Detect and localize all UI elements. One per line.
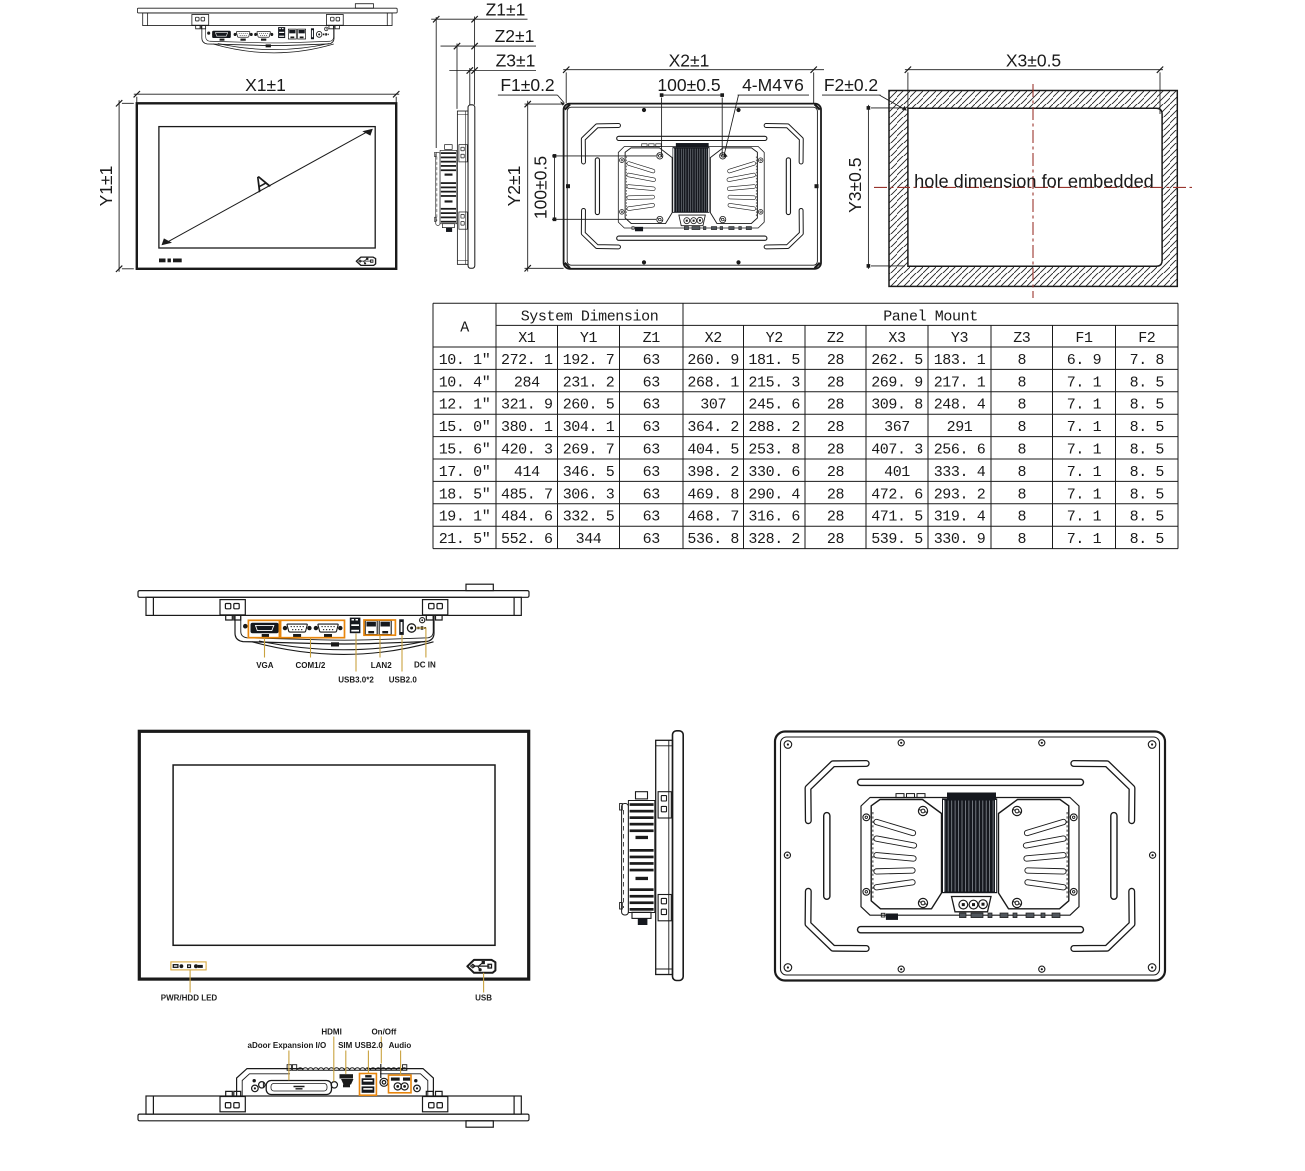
svg-text:8. 5: 8. 5	[1130, 486, 1165, 503]
svg-text:304. 1: 304. 1	[563, 419, 615, 436]
svg-text:PWR/HDD LED: PWR/HDD LED	[161, 994, 218, 1003]
svg-text:8: 8	[1017, 486, 1026, 503]
svg-text:4-M4: 4-M4	[742, 75, 782, 95]
svg-text:346. 5: 346. 5	[563, 464, 615, 481]
svg-text:6: 6	[794, 75, 804, 95]
svg-text:63: 63	[643, 374, 661, 391]
svg-text:328. 2: 328. 2	[748, 531, 800, 548]
svg-text:8. 5: 8. 5	[1130, 419, 1165, 436]
svg-text:7. 1: 7. 1	[1067, 464, 1102, 481]
svg-text:8: 8	[1017, 352, 1026, 369]
svg-text:215. 3: 215. 3	[748, 374, 800, 391]
svg-text:A: A	[250, 170, 273, 197]
svg-text:28: 28	[827, 509, 845, 526]
svg-text:291: 291	[947, 419, 973, 436]
svg-text:7. 1: 7. 1	[1067, 397, 1102, 414]
svg-text:7. 1: 7. 1	[1067, 419, 1102, 436]
svg-text:18. 5": 18. 5"	[439, 486, 491, 503]
svg-text:183. 1: 183. 1	[934, 352, 986, 369]
svg-text:192. 7: 192. 7	[563, 352, 615, 369]
svg-text:HDMI: HDMI	[321, 1028, 341, 1037]
svg-text:15. 0": 15. 0"	[439, 419, 491, 436]
svg-text:USB2.0: USB2.0	[389, 676, 418, 685]
svg-text:552. 6: 552. 6	[501, 531, 553, 548]
svg-text:Z3±1: Z3±1	[496, 51, 536, 71]
svg-text:8. 5: 8. 5	[1130, 509, 1165, 526]
svg-text:X1±1: X1±1	[245, 75, 286, 95]
svg-text:12. 1": 12. 1"	[439, 397, 491, 414]
svg-text:7. 1: 7. 1	[1067, 531, 1102, 548]
svg-text:100±0.5: 100±0.5	[657, 75, 720, 95]
svg-text:A: A	[460, 320, 469, 337]
svg-text:268. 1: 268. 1	[687, 374, 739, 391]
svg-text:284: 284	[514, 374, 540, 391]
svg-text:63: 63	[643, 509, 661, 526]
svg-text:28: 28	[827, 531, 845, 548]
svg-text:290. 4: 290. 4	[748, 486, 800, 503]
svg-text:USB: USB	[475, 994, 492, 1003]
svg-text:485. 7: 485. 7	[501, 486, 553, 503]
svg-text:100±0.5: 100±0.5	[531, 156, 551, 219]
svg-text:401: 401	[884, 464, 910, 481]
svg-text:8: 8	[1017, 374, 1026, 391]
svg-text:F2: F2	[1138, 330, 1155, 347]
svg-text:28: 28	[827, 486, 845, 503]
svg-text:X3±0.5: X3±0.5	[1006, 50, 1061, 70]
svg-text:316. 6: 316. 6	[748, 509, 800, 526]
svg-text:Y1: Y1	[580, 330, 598, 347]
svg-text:System Dimension: System Dimension	[521, 309, 659, 326]
svg-text:28: 28	[827, 464, 845, 481]
svg-text:USB2.0: USB2.0	[355, 1041, 384, 1050]
svg-text:8: 8	[1017, 442, 1026, 459]
svg-text:Audio: Audio	[389, 1041, 412, 1050]
svg-text:28: 28	[827, 442, 845, 459]
svg-text:Panel Mount: Panel Mount	[883, 309, 978, 326]
svg-text:8. 5: 8. 5	[1130, 531, 1165, 548]
svg-text:VGA: VGA	[256, 661, 274, 670]
svg-text:8. 5: 8. 5	[1130, 464, 1165, 481]
svg-text:471. 5: 471. 5	[871, 509, 923, 526]
svg-text:8. 5: 8. 5	[1130, 442, 1165, 459]
svg-text:X1: X1	[518, 330, 536, 347]
svg-text:Y3: Y3	[951, 330, 969, 347]
svg-text:469. 8: 469. 8	[687, 486, 739, 503]
svg-text:7. 8: 7. 8	[1130, 352, 1165, 369]
svg-text:Z3: Z3	[1013, 330, 1031, 347]
svg-text:28: 28	[827, 374, 845, 391]
svg-text:6. 9: 6. 9	[1067, 352, 1101, 369]
svg-text:7. 1: 7. 1	[1067, 374, 1102, 391]
svg-text:21. 5": 21. 5"	[439, 531, 491, 548]
svg-text:X2: X2	[705, 330, 722, 347]
svg-text:10. 4": 10. 4"	[439, 374, 491, 391]
svg-text:USB3.0*2: USB3.0*2	[338, 676, 374, 685]
svg-text:217. 1: 217. 1	[934, 374, 986, 391]
svg-text:272. 1: 272. 1	[501, 352, 553, 369]
svg-text:253. 8: 253. 8	[748, 442, 800, 459]
svg-text:330. 6: 330. 6	[748, 464, 800, 481]
svg-text:63: 63	[643, 531, 661, 548]
svg-text:245. 6: 245. 6	[748, 397, 800, 414]
svg-text:8. 5: 8. 5	[1130, 397, 1165, 414]
svg-text:484. 6: 484. 6	[501, 509, 553, 526]
svg-text:28: 28	[827, 419, 845, 436]
svg-text:309. 8: 309. 8	[871, 397, 923, 414]
svg-text:256. 6: 256. 6	[934, 442, 986, 459]
svg-text:539. 5: 539. 5	[871, 531, 923, 548]
svg-text:Z1±1: Z1±1	[486, 0, 526, 19]
svg-text:248. 4: 248. 4	[934, 397, 986, 414]
svg-text:63: 63	[643, 442, 661, 459]
svg-text:Y3±0.5: Y3±0.5	[845, 158, 865, 213]
svg-text:231. 2: 231. 2	[563, 374, 615, 391]
svg-text:F1: F1	[1075, 330, 1093, 347]
svg-text:LAN2: LAN2	[371, 661, 392, 670]
svg-text:7. 1: 7. 1	[1067, 442, 1102, 459]
svg-text:F2±0.2: F2±0.2	[824, 75, 878, 95]
svg-text:307: 307	[700, 397, 726, 414]
svg-text:319. 4: 319. 4	[934, 509, 986, 526]
svg-text:330. 9: 330. 9	[934, 531, 986, 548]
svg-text:8: 8	[1017, 397, 1026, 414]
svg-text:aDoor Expansion I/O: aDoor Expansion I/O	[248, 1041, 327, 1050]
svg-text:262. 5: 262. 5	[871, 352, 923, 369]
svg-text:63: 63	[643, 486, 661, 503]
svg-text:536. 8: 536. 8	[687, 531, 739, 548]
svg-text:260. 5: 260. 5	[563, 397, 615, 414]
svg-text:367: 367	[884, 419, 910, 436]
svg-text:472. 6: 472. 6	[871, 486, 923, 503]
svg-text:7. 1: 7. 1	[1067, 486, 1102, 503]
svg-text:8: 8	[1017, 509, 1026, 526]
svg-text:293. 2: 293. 2	[934, 486, 986, 503]
svg-text:420. 3: 420. 3	[501, 442, 553, 459]
svg-text:269. 7: 269. 7	[563, 442, 615, 459]
svg-text:63: 63	[643, 464, 661, 481]
svg-text:Y2: Y2	[766, 330, 783, 347]
svg-text:19. 1": 19. 1"	[439, 509, 491, 526]
svg-text:407. 3: 407. 3	[871, 442, 923, 459]
svg-text:Z2±1: Z2±1	[495, 26, 535, 46]
svg-text:Z1: Z1	[643, 330, 661, 347]
svg-text:28: 28	[827, 352, 845, 369]
svg-text:17. 0": 17. 0"	[439, 464, 491, 481]
svg-text:344: 344	[576, 531, 602, 548]
svg-text:COM1/2: COM1/2	[296, 661, 326, 670]
svg-text:X2±1: X2±1	[669, 50, 710, 70]
svg-text:DC IN: DC IN	[414, 660, 436, 669]
svg-text:63: 63	[643, 397, 661, 414]
svg-text:364. 2: 364. 2	[687, 419, 739, 436]
svg-text:181. 5: 181. 5	[748, 352, 800, 369]
svg-text:F1±0.2: F1±0.2	[500, 75, 554, 95]
svg-text:X3: X3	[888, 330, 906, 347]
svg-text:Z2: Z2	[827, 330, 844, 347]
svg-text:7. 1: 7. 1	[1067, 509, 1102, 526]
svg-text:414: 414	[514, 464, 540, 481]
svg-text:On/Off: On/Off	[371, 1028, 396, 1037]
svg-text:10. 1": 10. 1"	[439, 352, 491, 369]
svg-text:260. 9: 260. 9	[687, 352, 739, 369]
svg-text:Y1±1: Y1±1	[96, 166, 116, 207]
svg-text:8: 8	[1017, 419, 1026, 436]
svg-text:8: 8	[1017, 464, 1026, 481]
svg-text:Y2±1: Y2±1	[504, 166, 524, 207]
svg-text:380. 1: 380. 1	[501, 419, 553, 436]
svg-text:468. 7: 468. 7	[687, 509, 739, 526]
svg-text:hole dimension for embedded: hole dimension for embedded	[914, 172, 1154, 192]
svg-text:404. 5: 404. 5	[687, 442, 739, 459]
svg-text:SIM: SIM	[338, 1041, 353, 1050]
svg-text:28: 28	[827, 397, 845, 414]
svg-text:306. 3: 306. 3	[563, 486, 615, 503]
svg-text:269. 9: 269. 9	[871, 374, 923, 391]
svg-text:8: 8	[1017, 531, 1026, 548]
svg-text:63: 63	[643, 419, 661, 436]
svg-text:332. 5: 332. 5	[563, 509, 615, 526]
svg-text:321. 9: 321. 9	[501, 397, 553, 414]
svg-text:288. 2: 288. 2	[748, 419, 800, 436]
svg-text:63: 63	[643, 352, 661, 369]
svg-text:333. 4: 333. 4	[934, 464, 986, 481]
svg-text:8. 5: 8. 5	[1130, 374, 1165, 391]
svg-text:15. 6": 15. 6"	[439, 442, 491, 459]
svg-text:398. 2: 398. 2	[687, 464, 739, 481]
